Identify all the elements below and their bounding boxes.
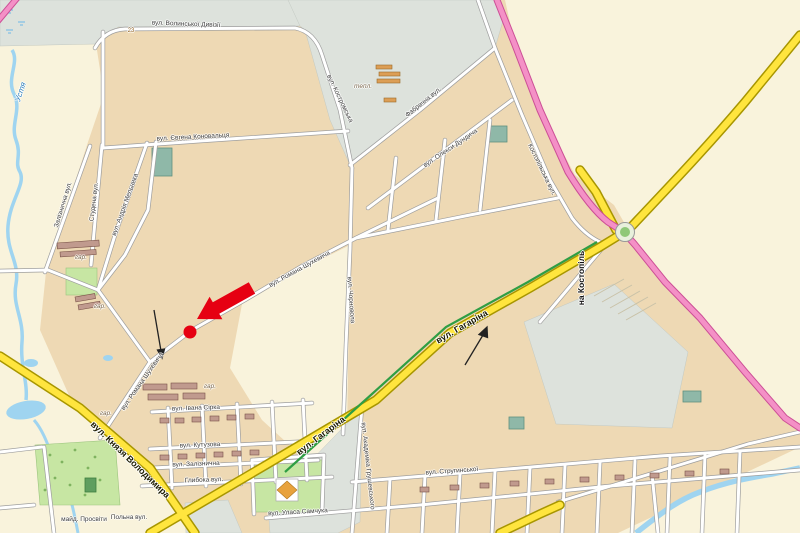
map-graphic	[0, 0, 800, 533]
thin-arrow-1	[154, 310, 165, 358]
map-canvas[interactable]: вул. Волинської Дивізіївул. Євгена Конов…	[0, 0, 800, 533]
maidan-building	[276, 479, 298, 501]
roundabout	[616, 223, 635, 242]
location-dot	[184, 326, 197, 339]
thin-arrow-2	[465, 327, 488, 365]
